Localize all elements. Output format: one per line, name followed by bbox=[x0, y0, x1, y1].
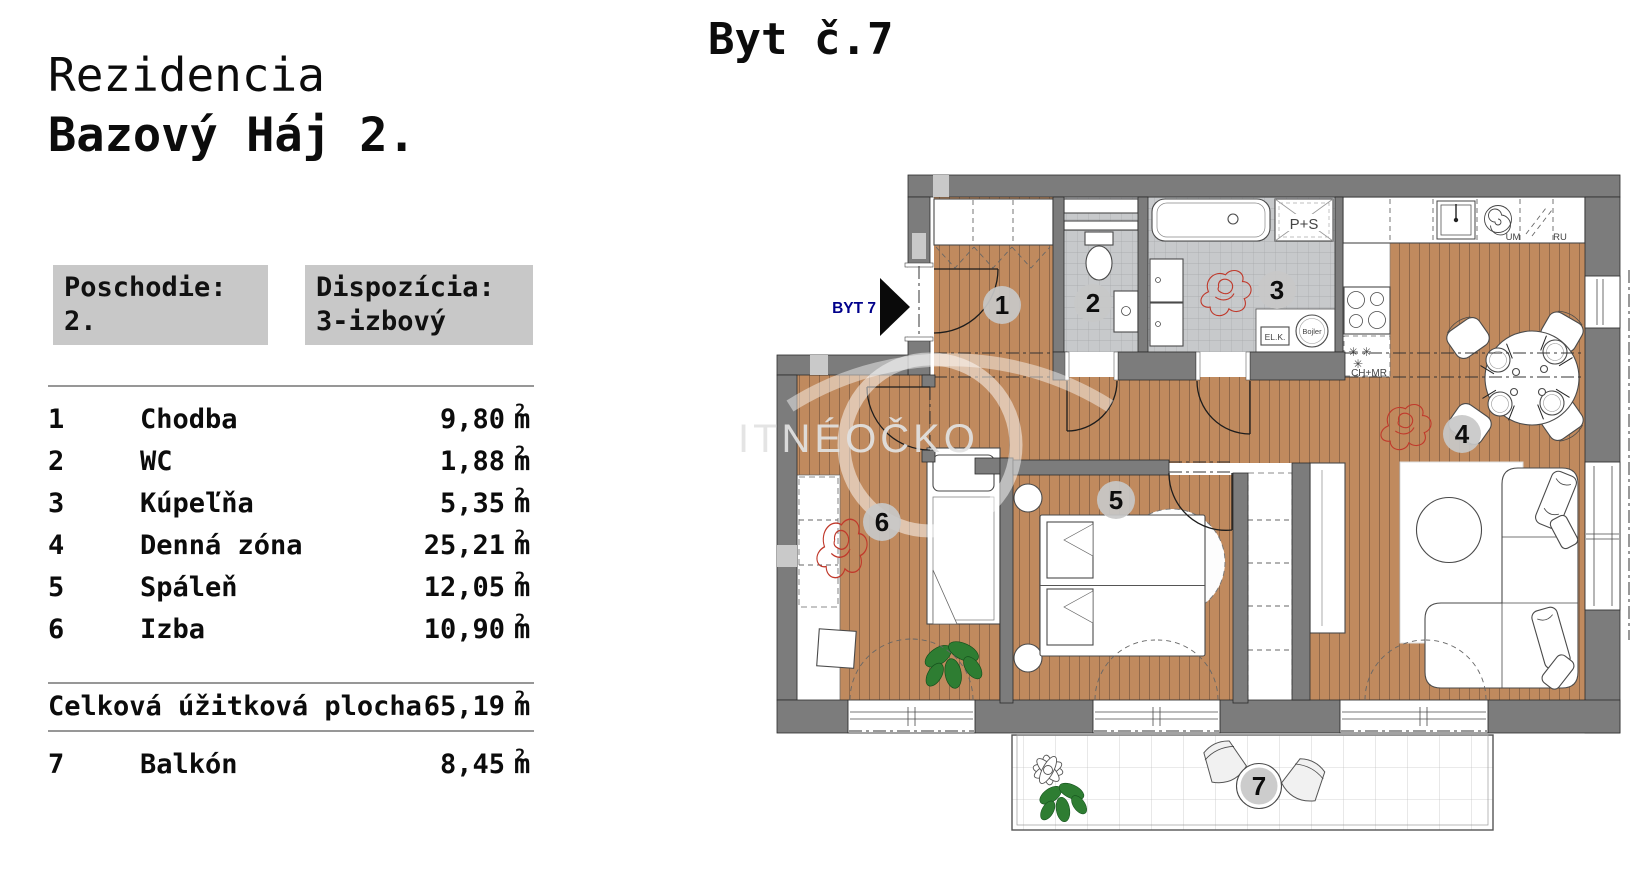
floor-box: Poschodie: 2. bbox=[53, 265, 268, 345]
floor-box-value: 2. bbox=[64, 305, 268, 339]
layout-box-value: 3-izbový bbox=[316, 305, 533, 339]
divider-total-bottom bbox=[48, 730, 534, 732]
room-area: 12,05 bbox=[424, 567, 505, 609]
apartment-title: Byt č.7 bbox=[708, 16, 893, 64]
room-badge-1: 1 bbox=[995, 290, 1009, 320]
label-boiler: Bojler bbox=[1302, 327, 1322, 336]
room-name: Chodba bbox=[140, 399, 238, 441]
room-area: 8,45 bbox=[440, 744, 505, 786]
table-row: 4 Denná zóna 25,21 m2 bbox=[48, 525, 540, 567]
room-area: 9,80 bbox=[440, 399, 505, 441]
wc-sink-icon bbox=[1114, 291, 1138, 332]
label-washer-dryer: P+S bbox=[1290, 216, 1319, 233]
window bbox=[1340, 700, 1488, 733]
room-area: 5,35 bbox=[440, 483, 505, 525]
room-area-unit: m2 bbox=[514, 609, 525, 658]
room-badge-3: 3 bbox=[1270, 275, 1284, 305]
entry-marker: BYT 7 bbox=[832, 278, 910, 336]
table-row: 5 Spáleň 12,05 m2 bbox=[48, 567, 540, 609]
window bbox=[848, 700, 975, 733]
room-number: 7 bbox=[48, 744, 64, 786]
kitchen-sink-icon bbox=[1437, 201, 1475, 239]
watermark-text: ITNÉOČKO bbox=[738, 416, 979, 461]
fridge-freezer-icon: ✳ ✳ ✳ CH+MR bbox=[1344, 336, 1390, 379]
washer-dryer-icon: P+S bbox=[1275, 199, 1333, 241]
room-area: 10,90 bbox=[424, 609, 505, 651]
room-number: 5 bbox=[48, 567, 64, 609]
room-number: 4 bbox=[48, 525, 64, 567]
room-name: Kúpeľňa bbox=[140, 483, 254, 525]
label-dishwasher: UM bbox=[1506, 232, 1521, 243]
residence-title-line1: Rezidencia bbox=[48, 50, 325, 101]
nightstand-icon bbox=[1014, 644, 1042, 672]
room-badge-4: 4 bbox=[1455, 419, 1470, 449]
layout-box: Dispozícia: 3-izbový bbox=[305, 265, 533, 345]
label-oven: RU bbox=[1553, 232, 1567, 243]
double-bed-icon bbox=[1040, 515, 1205, 656]
coffee-table-icon bbox=[1417, 498, 1482, 563]
total-label: Celková úžitková plocha bbox=[48, 686, 422, 728]
stove-icon bbox=[1344, 287, 1390, 334]
floor-plan: P+S EL.K. Bojler bbox=[700, 150, 1646, 884]
room-number: 1 bbox=[48, 399, 64, 441]
layout-box-label: Dispozícia: bbox=[316, 271, 533, 305]
entry-label: BYT 7 bbox=[832, 300, 876, 317]
room-badge-2: 2 bbox=[1086, 288, 1100, 318]
total-row: Celková úžitková plocha 65,19 m2 bbox=[48, 686, 540, 728]
bedroom-wardrobe bbox=[1248, 473, 1292, 703]
table-row: 3 Kúpeľňa 5,35 m2 bbox=[48, 483, 540, 525]
room-area-unit: m2 bbox=[514, 744, 525, 793]
room-number: 3 bbox=[48, 483, 64, 525]
room-area: 25,21 bbox=[424, 525, 505, 567]
room-number: 2 bbox=[48, 441, 64, 483]
room-badge-6: 6 bbox=[875, 507, 889, 537]
entry-arrow-icon bbox=[880, 278, 910, 336]
label-elk: EL.K. bbox=[1265, 332, 1286, 342]
side-table-icon bbox=[817, 629, 856, 668]
toilet-icon bbox=[1085, 232, 1113, 245]
residence-title-line2: Bazový Háj 2. bbox=[48, 110, 416, 162]
window bbox=[1585, 276, 1620, 328]
floor-box-label: Poschodie: bbox=[64, 271, 268, 305]
divider-top bbox=[48, 385, 534, 387]
room-name: Izba bbox=[140, 609, 205, 651]
total-area: 65,19 bbox=[424, 686, 505, 728]
room-name: WC bbox=[140, 441, 173, 483]
total-area-unit: m2 bbox=[514, 686, 525, 735]
window bbox=[1093, 700, 1220, 733]
room-badge-5: 5 bbox=[1109, 485, 1123, 515]
room-badge-7: 7 bbox=[1252, 771, 1266, 801]
balcony-row: 7 Balkón 8,45 m2 bbox=[48, 744, 540, 786]
room-area: 1,88 bbox=[440, 441, 505, 483]
room-name: Spáleň bbox=[140, 567, 238, 609]
floorplan-page: Rezidencia Bazový Háj 2. Poschodie: 2. D… bbox=[0, 0, 1646, 884]
table-row: 1 Chodba 9,80 m2 bbox=[48, 399, 540, 441]
bathtub-icon bbox=[1152, 199, 1270, 241]
window bbox=[1585, 462, 1620, 610]
living-wardrobe bbox=[1310, 463, 1345, 633]
nightstand-icon bbox=[1014, 484, 1042, 512]
table-row: 6 Izba 10,90 m2 bbox=[48, 609, 540, 651]
table-row: 2 WC 1,88 m2 bbox=[48, 441, 540, 483]
room-name: Denná zóna bbox=[140, 525, 303, 567]
divider-total-top bbox=[48, 682, 534, 684]
boiler-unit: EL.K. Bojler bbox=[1256, 309, 1335, 352]
room-number: 6 bbox=[48, 609, 64, 651]
room-name: Balkón bbox=[140, 744, 238, 786]
